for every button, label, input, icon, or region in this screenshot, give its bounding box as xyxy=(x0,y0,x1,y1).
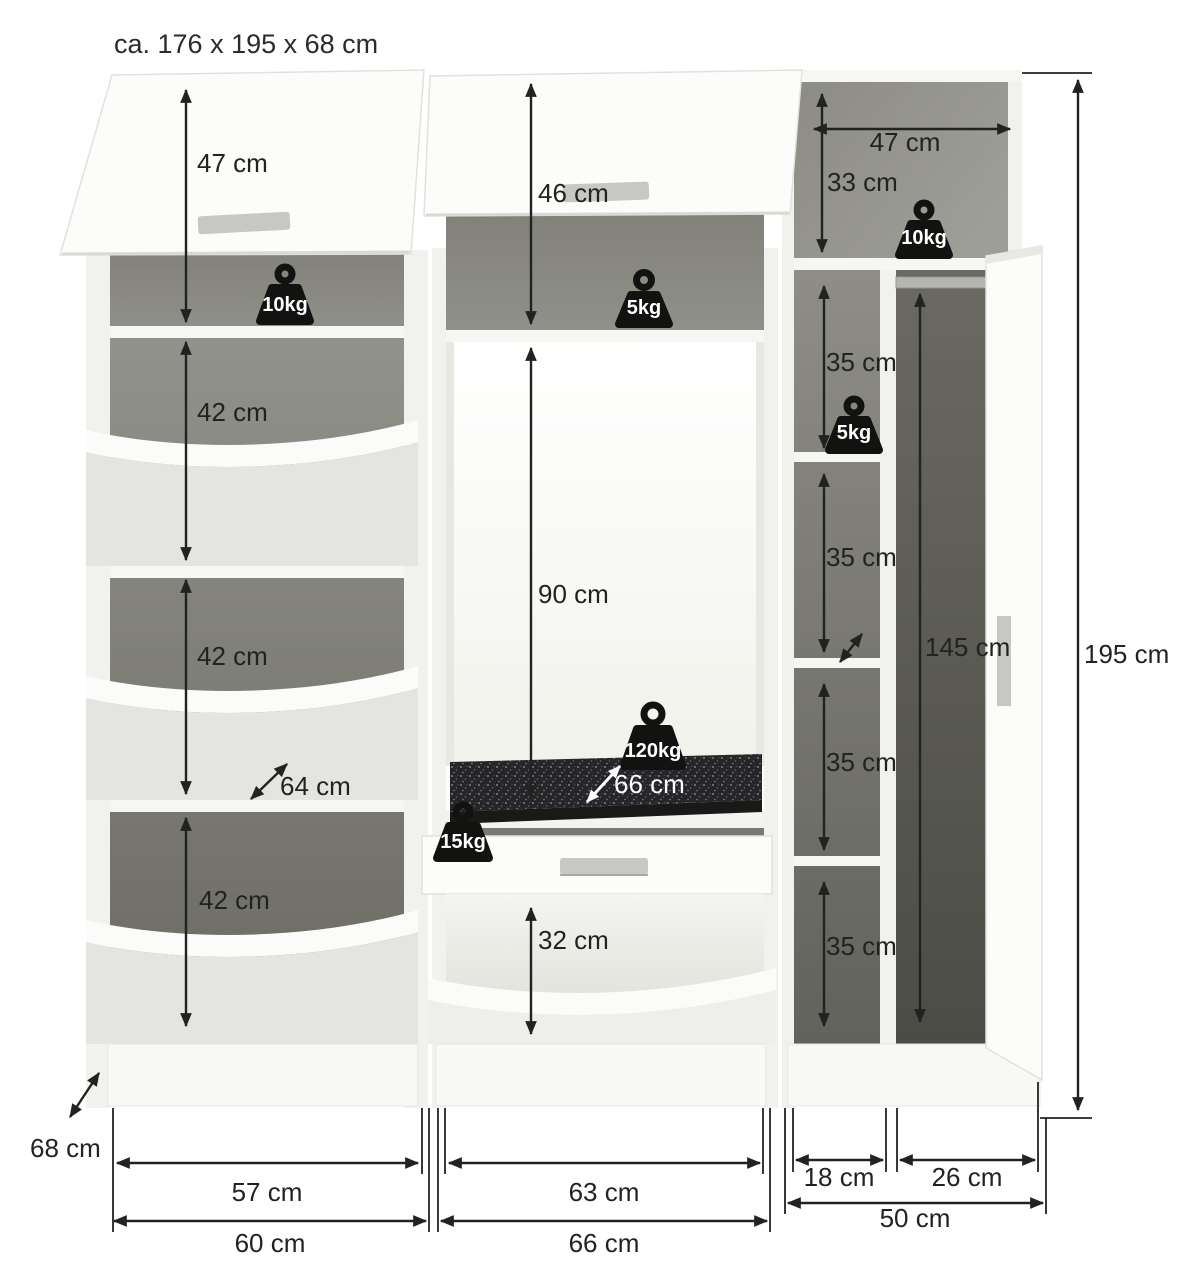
left-shelf xyxy=(110,326,404,338)
right-door xyxy=(986,246,1042,1080)
dim-overall-height: 195 cm xyxy=(1084,639,1169,669)
middle-left-panel xyxy=(432,248,446,1108)
left-plinth xyxy=(108,1044,418,1106)
dim-right-top-width: 47 cm xyxy=(870,127,941,157)
left-cabinet xyxy=(60,70,428,1108)
dim-middle-niche-height: 90 cm xyxy=(538,579,609,609)
dim-right-shelf4: 35 cm xyxy=(826,931,897,961)
dim-seat-depth: 66 cm xyxy=(614,769,685,799)
seat-bench xyxy=(450,754,762,824)
dim-left-inner-width: 57 cm xyxy=(232,1177,303,1207)
middle-plinth xyxy=(436,1044,766,1106)
middle-open-niche xyxy=(446,342,764,766)
furniture-dimension-diagram: 10kg 5kg 10kg 5kg 120kg 15kg xyxy=(0,0,1200,1277)
dim-middle-comp-height: 32 cm xyxy=(538,925,609,955)
weight-10kg-right-label: 10kg xyxy=(901,227,947,249)
diagram-canvas: 10kg 5kg 10kg 5kg 120kg 15kg xyxy=(0,0,1200,1277)
dim-rod-height: 145 cm xyxy=(925,632,1010,662)
dim-right-niche-right-width: 26 cm xyxy=(932,1162,1003,1192)
middle-shelf xyxy=(446,330,764,342)
weight-5kg-right-label: 5kg xyxy=(837,422,871,444)
left-top-compartment xyxy=(110,252,404,328)
dim-left-flap-height: 47 cm xyxy=(197,148,268,178)
left-shelf-2 xyxy=(110,566,404,578)
dim-left-comp1: 42 cm xyxy=(197,397,268,427)
middle-flap-door xyxy=(424,70,802,216)
clothes-rail xyxy=(896,277,988,288)
dim-right-top-height: 33 cm xyxy=(827,167,898,197)
right-shelf-column xyxy=(794,270,880,1044)
weight-10kg-left-label: 10kg xyxy=(262,294,308,316)
middle-top-compartment xyxy=(446,214,764,330)
dim-right-niche-left-width: 18 cm xyxy=(804,1162,875,1192)
right-shelf-3 xyxy=(794,856,880,866)
drawer-handle xyxy=(560,858,648,875)
dim-left-outer-width: 60 cm xyxy=(235,1228,306,1258)
product-size-title: ca. 176 x 195 x 68 cm xyxy=(114,29,378,59)
dim-right-shelf3: 35 cm xyxy=(826,747,897,777)
weight-15kg-label: 15kg xyxy=(440,831,486,853)
weight-5kg-middle-label: 5kg xyxy=(627,297,661,319)
dim-middle-outer-width: 66 cm xyxy=(569,1228,640,1258)
dim-left-comp2: 42 cm xyxy=(197,641,268,671)
right-top-panel xyxy=(782,70,1022,82)
dim-right-shelf2: 35 cm xyxy=(826,542,897,572)
dim-right-shelf1: 35 cm xyxy=(826,347,897,377)
dim-overall-depth: 68 cm xyxy=(30,1133,101,1163)
dim-right-outer-width: 50 cm xyxy=(880,1203,951,1233)
weight-120kg-label: 120kg xyxy=(625,740,682,762)
right-left-panel xyxy=(782,72,794,1108)
right-divider-panel xyxy=(880,270,896,1044)
left-shelf-3 xyxy=(110,800,404,812)
dim-left-comp3: 42 cm xyxy=(199,885,270,915)
right-shelf-2 xyxy=(794,658,880,668)
dim-middle-inner-width: 63 cm xyxy=(569,1177,640,1207)
dim-left-depth: 64 cm xyxy=(280,771,351,801)
dim-middle-flap-height: 46 cm xyxy=(538,178,609,208)
middle-niche-left-shade xyxy=(446,342,454,766)
right-top-right-wall xyxy=(1008,82,1022,258)
middle-niche-right-shade xyxy=(756,342,764,766)
middle-cabinet xyxy=(422,70,802,1108)
